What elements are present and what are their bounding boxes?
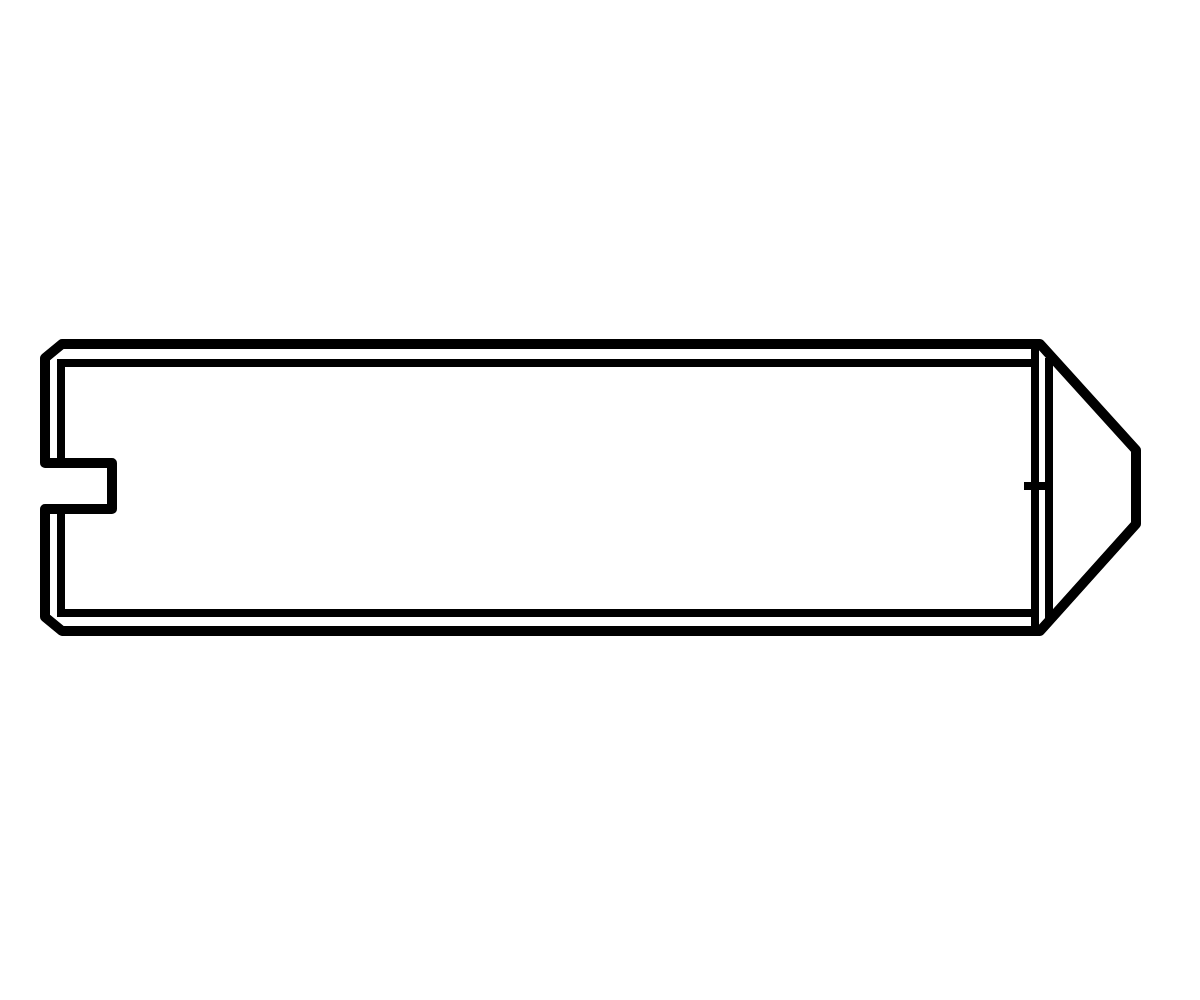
set-screw-drawing bbox=[0, 0, 1200, 1000]
screw-outer-profile bbox=[45, 344, 1136, 631]
drawing-canvas bbox=[0, 0, 1200, 1000]
